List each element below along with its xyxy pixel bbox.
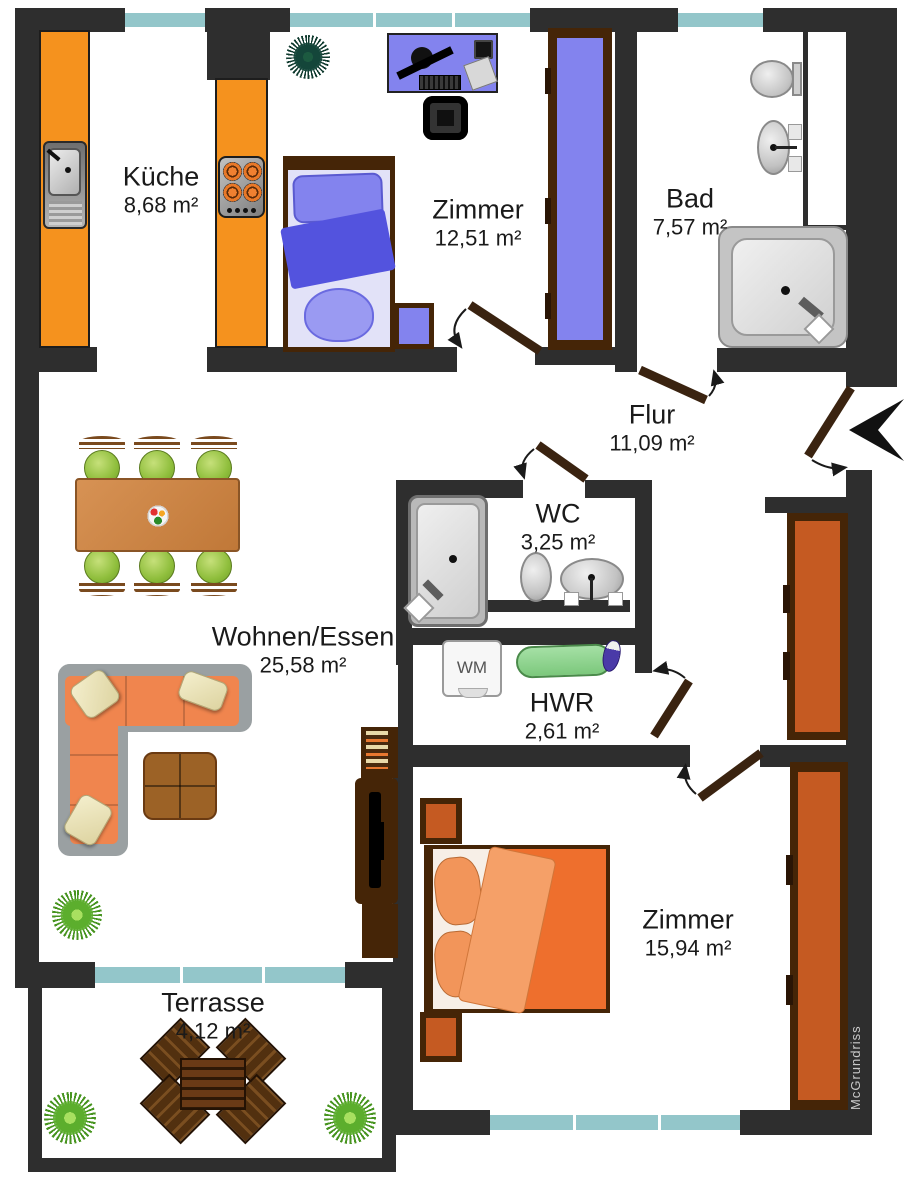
plant-icon bbox=[286, 35, 330, 79]
tap-icon bbox=[608, 592, 623, 606]
window-bath bbox=[678, 8, 763, 32]
window-glass bbox=[95, 967, 345, 983]
nightstand bbox=[420, 798, 462, 844]
tap-icon bbox=[788, 124, 802, 140]
room-label-wc: WC 3,25 m² bbox=[521, 498, 596, 557]
window-glass bbox=[490, 1115, 740, 1130]
bed-single bbox=[283, 156, 395, 352]
door-swing-icon bbox=[709, 375, 716, 396]
tv-icon bbox=[379, 822, 384, 860]
chair-back-icon bbox=[134, 436, 180, 449]
wall-terrace-left bbox=[28, 988, 42, 1172]
desk bbox=[387, 33, 498, 93]
room-label-wohnen: Wohnen/Essen 25,58 m² bbox=[212, 621, 395, 680]
terrace-table-icon bbox=[180, 1058, 246, 1110]
plant-icon bbox=[324, 1092, 376, 1144]
books-icon bbox=[366, 731, 388, 769]
tv-cabinet bbox=[355, 778, 398, 904]
sink-handle-icon bbox=[775, 146, 797, 149]
hall-wardrobe bbox=[787, 513, 848, 740]
bed-double bbox=[424, 845, 610, 1013]
window-room1 bbox=[290, 8, 530, 32]
door-bath bbox=[640, 370, 706, 400]
plant-icon bbox=[44, 1092, 96, 1144]
plant-icon bbox=[52, 890, 102, 940]
room-label-flur: Flur 11,09 m² bbox=[609, 399, 694, 458]
wardrobe-door bbox=[557, 38, 603, 340]
stove-icon bbox=[218, 156, 265, 218]
wall-left bbox=[15, 8, 39, 988]
washing-machine-label: WM bbox=[444, 658, 500, 678]
door-swing-icon bbox=[812, 460, 842, 468]
tub-drain-icon bbox=[449, 555, 457, 563]
sink-drain-icon bbox=[65, 167, 71, 173]
centerpiece-icon bbox=[145, 503, 171, 529]
wall-kitchen-stub bbox=[207, 8, 270, 80]
door-swing-icon bbox=[685, 769, 696, 794]
wall-mid-1 bbox=[15, 347, 97, 372]
wardrobe-room1 bbox=[548, 28, 612, 350]
dining-table bbox=[75, 478, 240, 552]
door-entrance bbox=[808, 388, 851, 456]
door-swing-icon bbox=[658, 669, 685, 678]
wc-toilet-icon bbox=[520, 552, 552, 602]
wall-right-upper bbox=[846, 8, 897, 387]
window-glass bbox=[290, 13, 530, 27]
floor-plan: WM bbox=[0, 0, 920, 1201]
wall-hall-stub bbox=[765, 497, 848, 513]
room-label-bad: Bad 7,57 m² bbox=[653, 183, 728, 242]
sink-drainboard-icon bbox=[49, 201, 82, 225]
door-hwr bbox=[654, 681, 689, 736]
chair-back-icon bbox=[191, 436, 237, 449]
room-label-zimmer1: Zimmer 12,51 m² bbox=[432, 194, 523, 253]
door-swing-icon bbox=[522, 449, 534, 474]
room-label-hwr: HWR 2,61 m² bbox=[525, 687, 600, 746]
dining-chair bbox=[84, 548, 120, 584]
entrance-arrow-icon bbox=[849, 399, 904, 461]
tap-icon bbox=[564, 592, 579, 606]
bedroom-wardrobe bbox=[790, 762, 848, 1110]
wall-wc-right bbox=[635, 480, 652, 632]
phone-icon bbox=[474, 40, 493, 59]
wall-living-bottom-1 bbox=[15, 962, 95, 988]
bookshelf bbox=[361, 727, 398, 778]
wall-bedroom-top-1 bbox=[393, 745, 690, 767]
ironing-board-icon bbox=[515, 643, 612, 678]
wall-terrace-right bbox=[382, 988, 396, 1158]
door-room1 bbox=[470, 305, 540, 351]
toilet-bowl-icon bbox=[750, 60, 794, 98]
window-terrace-door bbox=[95, 962, 345, 988]
chair-back-icon bbox=[79, 436, 125, 449]
wall-hwr-right-stub bbox=[635, 628, 652, 673]
shower-drain-icon bbox=[781, 286, 790, 295]
dining-chair bbox=[139, 548, 175, 584]
door-wc bbox=[538, 445, 586, 479]
window-glass bbox=[125, 13, 205, 27]
wall-room1-bath bbox=[615, 8, 637, 372]
window-kitchen bbox=[125, 8, 205, 32]
wall-hwr-left bbox=[398, 645, 413, 750]
sideboard bbox=[362, 904, 398, 958]
washing-machine: WM bbox=[442, 640, 502, 697]
sink-handle-icon bbox=[590, 578, 593, 600]
room-label-kueche: Küche 8,68 m² bbox=[123, 161, 200, 220]
bed-duvet-icon bbox=[304, 288, 374, 342]
wall-mid-4 bbox=[717, 348, 848, 372]
watermark: McGrundriss bbox=[848, 1022, 872, 1114]
notepad-icon bbox=[463, 56, 498, 91]
nightstand bbox=[394, 303, 434, 349]
dining-chair bbox=[196, 548, 232, 584]
keyboard-icon bbox=[419, 75, 461, 90]
bath-niche bbox=[803, 32, 846, 230]
chair-back-icon bbox=[191, 583, 237, 596]
chair-back-icon bbox=[134, 583, 180, 596]
wall-living-bottom-2 bbox=[345, 962, 413, 988]
kitchen-sink-unit bbox=[43, 141, 87, 229]
door-bedroom bbox=[700, 753, 761, 798]
door-swing-icon bbox=[454, 309, 466, 344]
room-label-zimmer2: Zimmer 15,94 m² bbox=[642, 904, 733, 963]
desk-chair bbox=[423, 96, 468, 140]
coffee-table bbox=[143, 752, 217, 820]
wall-bedroom-bottom-1 bbox=[393, 1110, 490, 1135]
wall-terrace-bottom bbox=[28, 1158, 396, 1172]
room-label-terrasse: Terrasse 4,12 m² bbox=[161, 987, 265, 1046]
window-bedroom bbox=[490, 1110, 740, 1135]
shower-icon bbox=[718, 226, 848, 348]
window-glass bbox=[678, 13, 763, 27]
wall-bedroom-bottom-2 bbox=[740, 1110, 846, 1135]
nightstand bbox=[420, 1012, 462, 1062]
chair-back-icon bbox=[79, 583, 125, 596]
tap-icon bbox=[788, 156, 802, 172]
